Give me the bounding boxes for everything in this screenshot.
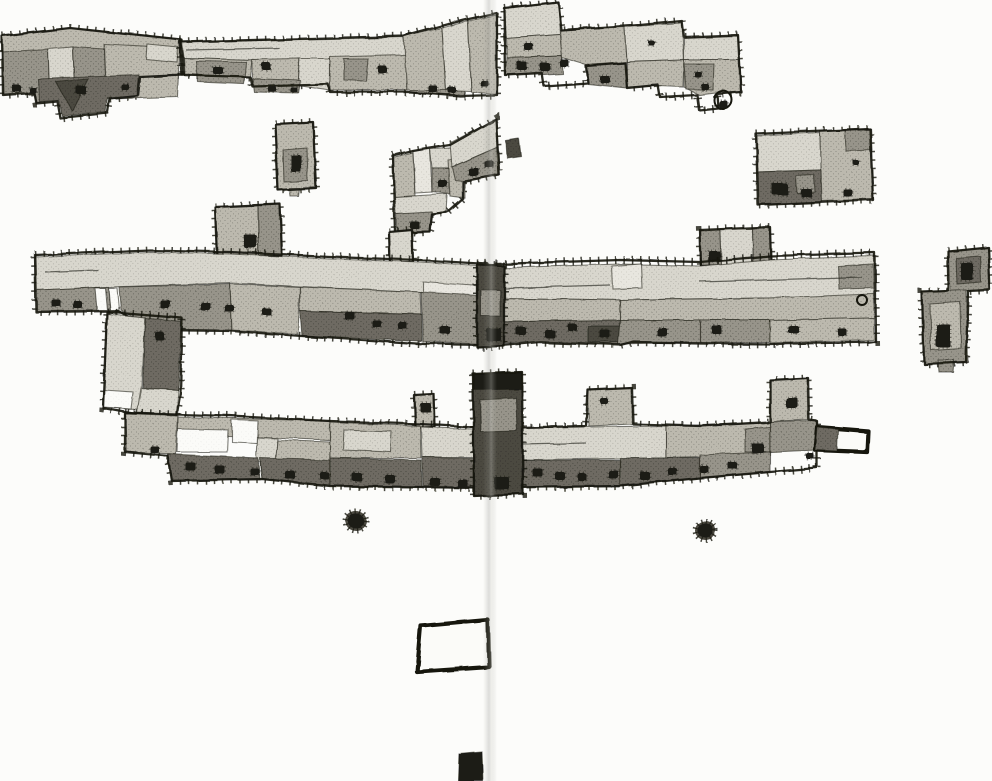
fold-mark [506,139,521,158]
wing-west [103,312,182,416]
building-a [275,122,316,196]
row3-west [125,413,476,488]
bottom-mark [458,752,483,781]
well-b [695,521,716,540]
enclosure-outline [417,620,489,672]
scanned-plan-page [0,0,992,781]
tower-at-fold [473,372,523,496]
page-fold-gutter [483,0,497,781]
site-plan-figure [0,0,992,781]
row2-east [496,253,876,346]
well-a [345,512,367,531]
building-e [756,129,873,205]
